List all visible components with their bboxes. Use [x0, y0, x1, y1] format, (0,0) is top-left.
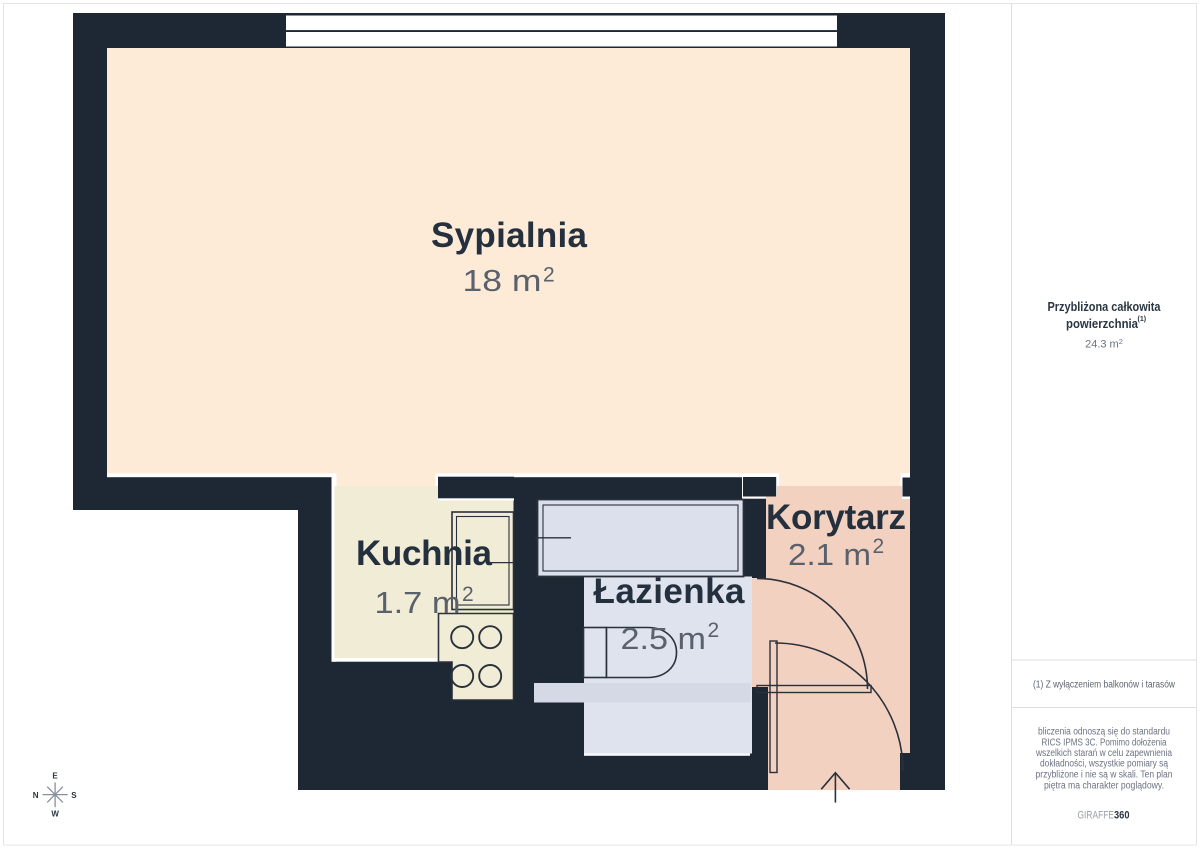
- svg-text:2: 2: [708, 619, 720, 642]
- svg-text:2.1 m: 2.1 m: [788, 537, 871, 572]
- svg-text:Kuchnia: Kuchnia: [356, 534, 493, 573]
- svg-text:S: S: [71, 791, 77, 800]
- svg-text:Sypialnia: Sypialnia: [431, 216, 588, 255]
- svg-text:dokładności, wszystkie pomiary: dokładności, wszystkie pomiary są: [1040, 759, 1168, 770]
- svg-text:2: 2: [543, 264, 555, 287]
- svg-text:Korytarz: Korytarz: [766, 498, 906, 537]
- svg-text:piętra ma charakter poglądowy.: piętra ma charakter poglądowy.: [1044, 780, 1164, 791]
- svg-text:E: E: [52, 772, 58, 781]
- svg-text:(1) Z wyłączeniem balkonów i t: (1) Z wyłączeniem balkonów i tarasów: [1033, 680, 1176, 691]
- svg-text:N: N: [33, 791, 39, 800]
- svg-text:360: 360: [1114, 810, 1130, 822]
- svg-text:24.3 m2: 24.3 m2: [1085, 337, 1123, 351]
- svg-text:1.7 m: 1.7 m: [375, 585, 461, 620]
- svg-text:2.5 m: 2.5 m: [621, 621, 707, 656]
- svg-text:wszelkich starań w celu zapewn: wszelkich starań w celu zapewnienia: [1035, 748, 1172, 759]
- svg-text:Przybliżona całkowita: Przybliżona całkowita: [1048, 299, 1162, 314]
- svg-text:GIRAFFE: GIRAFFE: [1078, 810, 1115, 822]
- svg-text:powierzchnia: powierzchnia: [1066, 316, 1139, 331]
- svg-text:przybliżone i nie są w skali.: przybliżone i nie są w skali. Ten plan: [1036, 770, 1173, 781]
- svg-text:(1): (1): [1138, 316, 1147, 323]
- svg-text:Łazienka: Łazienka: [594, 572, 746, 611]
- svg-text:2: 2: [462, 583, 474, 606]
- svg-text:RICS IPMS 3C. Pomimo dołożenia: RICS IPMS 3C. Pomimo dołożenia: [1042, 737, 1167, 748]
- svg-text:2: 2: [873, 535, 885, 558]
- svg-text:bliczenia odnoszą się do stand: bliczenia odnoszą się do standardu: [1038, 727, 1170, 738]
- svg-text:W: W: [51, 810, 59, 819]
- svg-text:18 m: 18 m: [463, 263, 542, 298]
